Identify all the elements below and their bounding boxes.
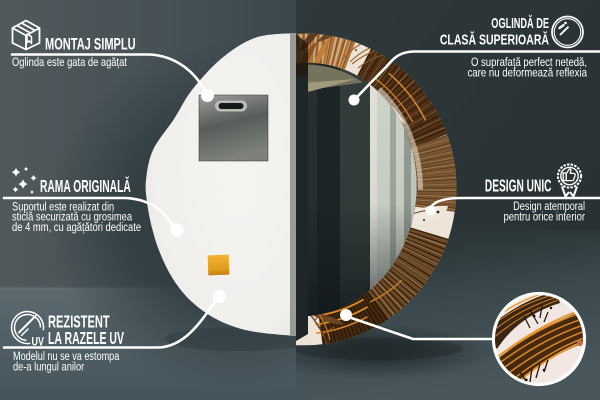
svg-text:pentru orice interior: pentru orice interior [503,211,585,224]
svg-text:MONTAJ SIMPLU: MONTAJ SIMPLU [45,34,136,53]
svg-text:RAMA ORIGINALĂ: RAMA ORIGINALĂ [40,176,131,197]
svg-text:care nu deformează reflexia: care nu deformează reflexia [467,67,587,80]
svg-text:UV: UV [32,337,45,349]
svg-text:DESIGN UNIC: DESIGN UNIC [485,177,552,197]
svg-text:Oglinda este gata de agățat: Oglinda este gata de agățat [12,56,127,69]
svg-text:de-a lungul anilor: de-a lungul anilor [13,360,85,373]
svg-text:OGLINDĂ DE: OGLINDĂ DE [491,13,549,31]
svg-text:LA RAZELE UV: LA RAZELE UV [48,329,124,348]
svg-text:de 4 mm, cu agățători dedicate: de 4 mm, cu agățători dedicate [12,221,141,234]
svg-text:CLASĂ SUPERIOARĂ: CLASĂ SUPERIOARĂ [440,31,549,48]
